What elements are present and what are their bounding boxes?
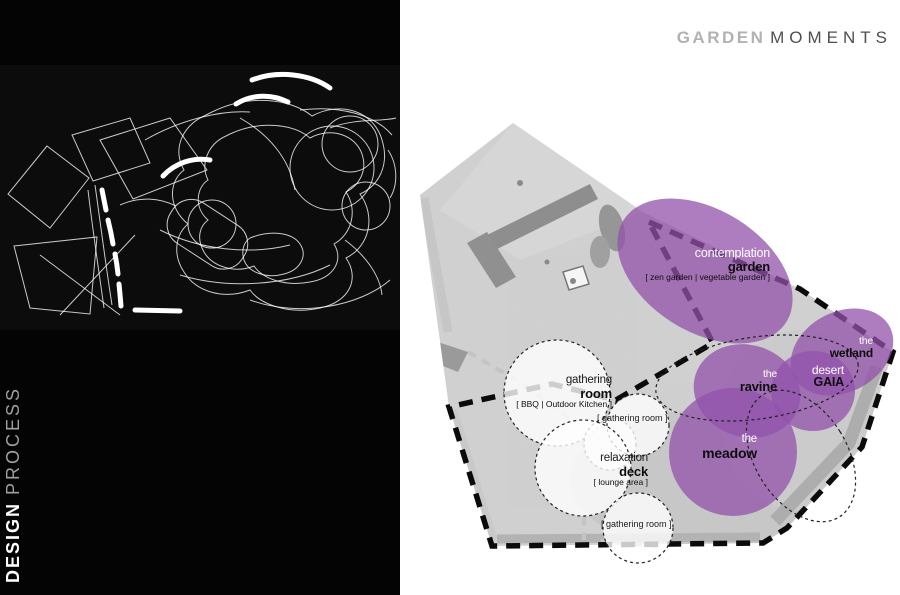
label-the-wetland: the wetland xyxy=(830,336,873,359)
label-gathering-room-upper: [ gathering room ] xyxy=(597,413,668,423)
presentation-slide: DESIGN PROCESS GARDEN MOMENTS xyxy=(0,0,900,595)
label-line: relaxation xyxy=(594,453,648,465)
sketch-background xyxy=(0,65,400,330)
label-the-meadow: the meadow xyxy=(702,434,757,460)
label-line: deck xyxy=(594,465,648,478)
design-sketch-drawing xyxy=(0,65,400,330)
label-line: meadow xyxy=(702,446,757,460)
label-contemplation-garden: contemplation garden [ zen garden | vege… xyxy=(645,247,770,282)
label-desert-gaia: desert GAIA xyxy=(812,364,844,389)
label-gathering-room-lower: [ gathering room ] xyxy=(601,519,672,529)
label-line: room xyxy=(516,387,612,400)
label-line: wetland xyxy=(830,347,873,359)
label-line: [ BBQ | Outdoor Kitchen ] xyxy=(516,400,612,409)
page-title: GARDEN MOMENTS xyxy=(677,28,892,48)
design-process-panel: DESIGN PROCESS xyxy=(0,0,400,595)
title-garden: GARDEN xyxy=(677,28,766,47)
label-the-ravine: the ravine xyxy=(740,369,777,393)
label-line: garden xyxy=(645,260,770,273)
label-line: contemplation xyxy=(645,247,770,260)
caption-design: DESIGN xyxy=(3,502,23,583)
label-line: the xyxy=(702,434,757,446)
label-line: [ zen garden | vegetable garden ] xyxy=(645,273,770,282)
label-gathering-room: gathering room [ BBQ | Outdoor Kitchen ] xyxy=(516,375,612,409)
label-line: ravine xyxy=(740,380,777,393)
label-line: [ lounge area ] xyxy=(594,478,648,487)
label-relaxation-deck: relaxation deck [ lounge area ] xyxy=(594,453,648,487)
title-moments: MOMENTS xyxy=(770,28,892,47)
design-process-caption: DESIGN PROCESS xyxy=(3,386,24,583)
label-line: gathering xyxy=(516,375,612,387)
site-plan-map xyxy=(400,60,900,595)
caption-process: PROCESS xyxy=(3,386,23,495)
label-line: GAIA xyxy=(812,376,844,389)
